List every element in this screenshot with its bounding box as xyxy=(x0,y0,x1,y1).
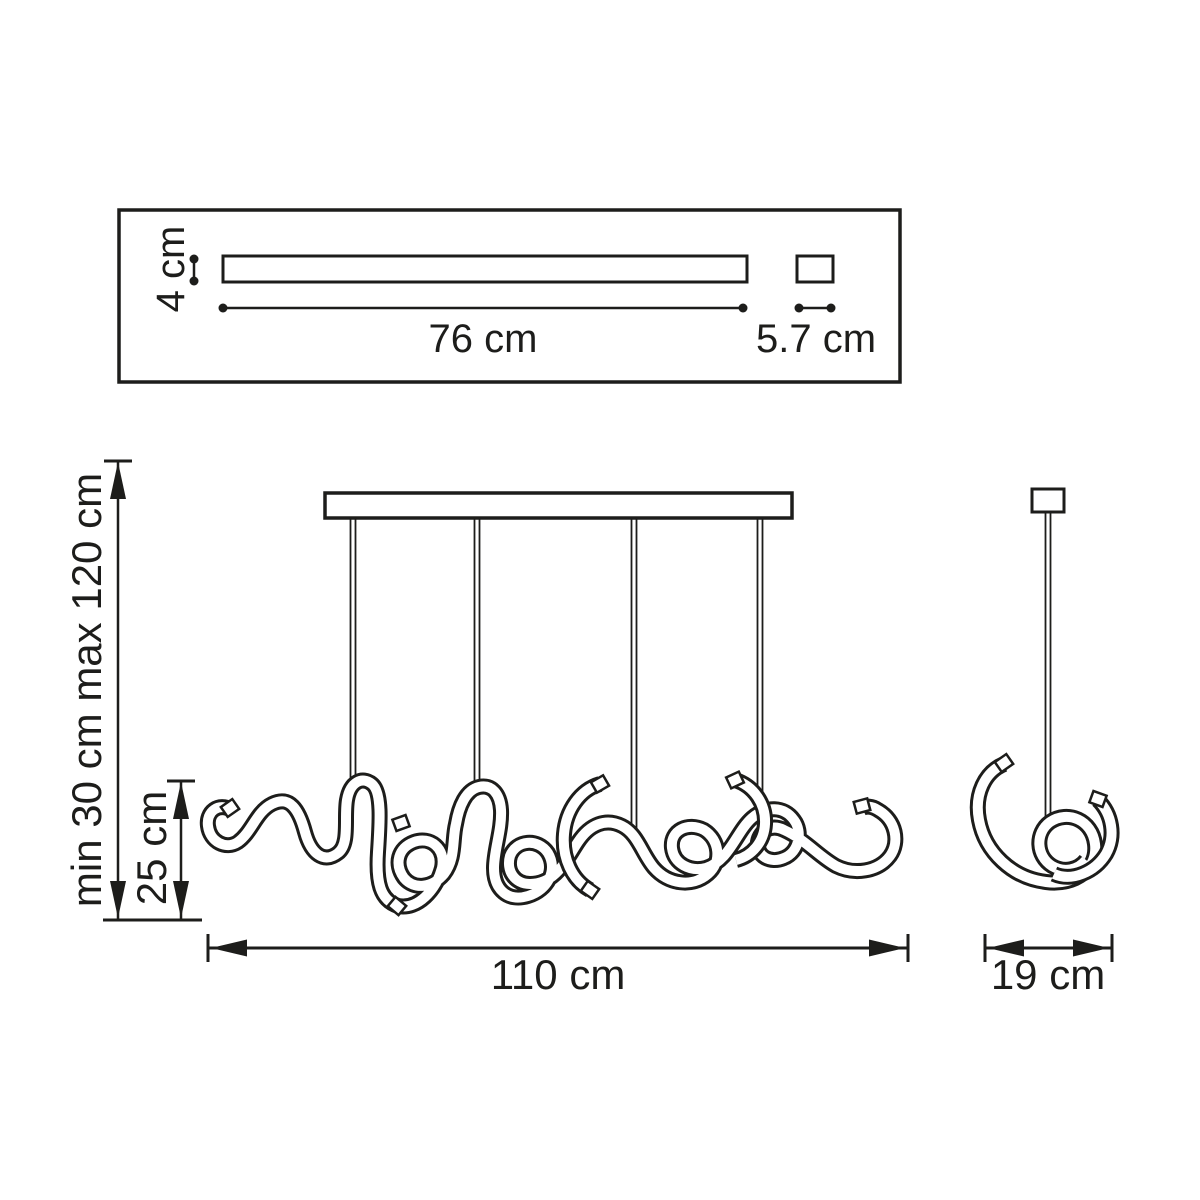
bar-width-label: 76 cm xyxy=(429,317,538,361)
fixture-depth-label: 19 cm xyxy=(991,951,1105,998)
suspension-height-label: min 30 cm max 120 cm xyxy=(63,473,110,907)
ceiling-canopy-side xyxy=(1032,489,1064,512)
dimension-dot xyxy=(795,304,804,313)
arrow-left xyxy=(211,940,247,957)
side-view: 19 cm xyxy=(978,489,1112,998)
bar-thickness-label: 4 cm xyxy=(149,226,193,313)
fixture-width-label: 110 cm xyxy=(491,951,626,998)
arrow-right xyxy=(869,940,905,957)
mounting-plate-panel: 4 cm 76 cm 5.7 cm xyxy=(119,210,900,382)
dimension-dot xyxy=(219,304,228,313)
front-view: min 30 cm max 120 cm 25 cm 110 cm xyxy=(63,461,908,998)
led-squiggle-tube-front xyxy=(208,772,896,915)
canopy-width-label: 5.7 cm xyxy=(756,317,876,361)
fixture-height-dimension: 25 cm xyxy=(128,781,195,920)
arrow-up xyxy=(110,462,126,499)
fixture-height-label: 25 cm xyxy=(128,791,175,905)
fixture-depth-dimension: 19 cm xyxy=(985,934,1112,998)
arrow-up xyxy=(173,782,189,819)
arrow-down xyxy=(173,881,189,918)
suspension-rod-side xyxy=(1046,512,1051,824)
canopy-box-outline xyxy=(797,256,833,282)
dimension-dot xyxy=(739,304,748,313)
dimension-drawing-page: 4 cm 76 cm 5.7 cm xyxy=(0,0,1200,1200)
dimension-dot xyxy=(827,304,836,313)
suspension-rods xyxy=(351,518,763,832)
technical-drawing: 4 cm 76 cm 5.7 cm xyxy=(0,0,1200,1200)
arrow-down xyxy=(110,881,126,918)
mounting-bar-outline xyxy=(223,256,747,282)
fixture-width-dimension: 110 cm xyxy=(208,934,908,998)
ceiling-bar xyxy=(325,493,792,518)
